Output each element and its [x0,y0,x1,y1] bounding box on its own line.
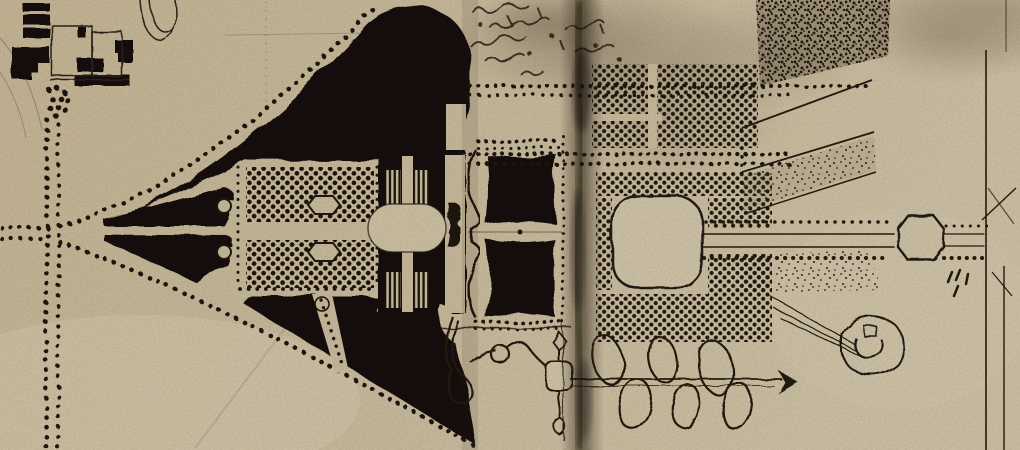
photo-grain-overlay [0,0,1020,450]
garden-plan-photo [0,0,1020,450]
